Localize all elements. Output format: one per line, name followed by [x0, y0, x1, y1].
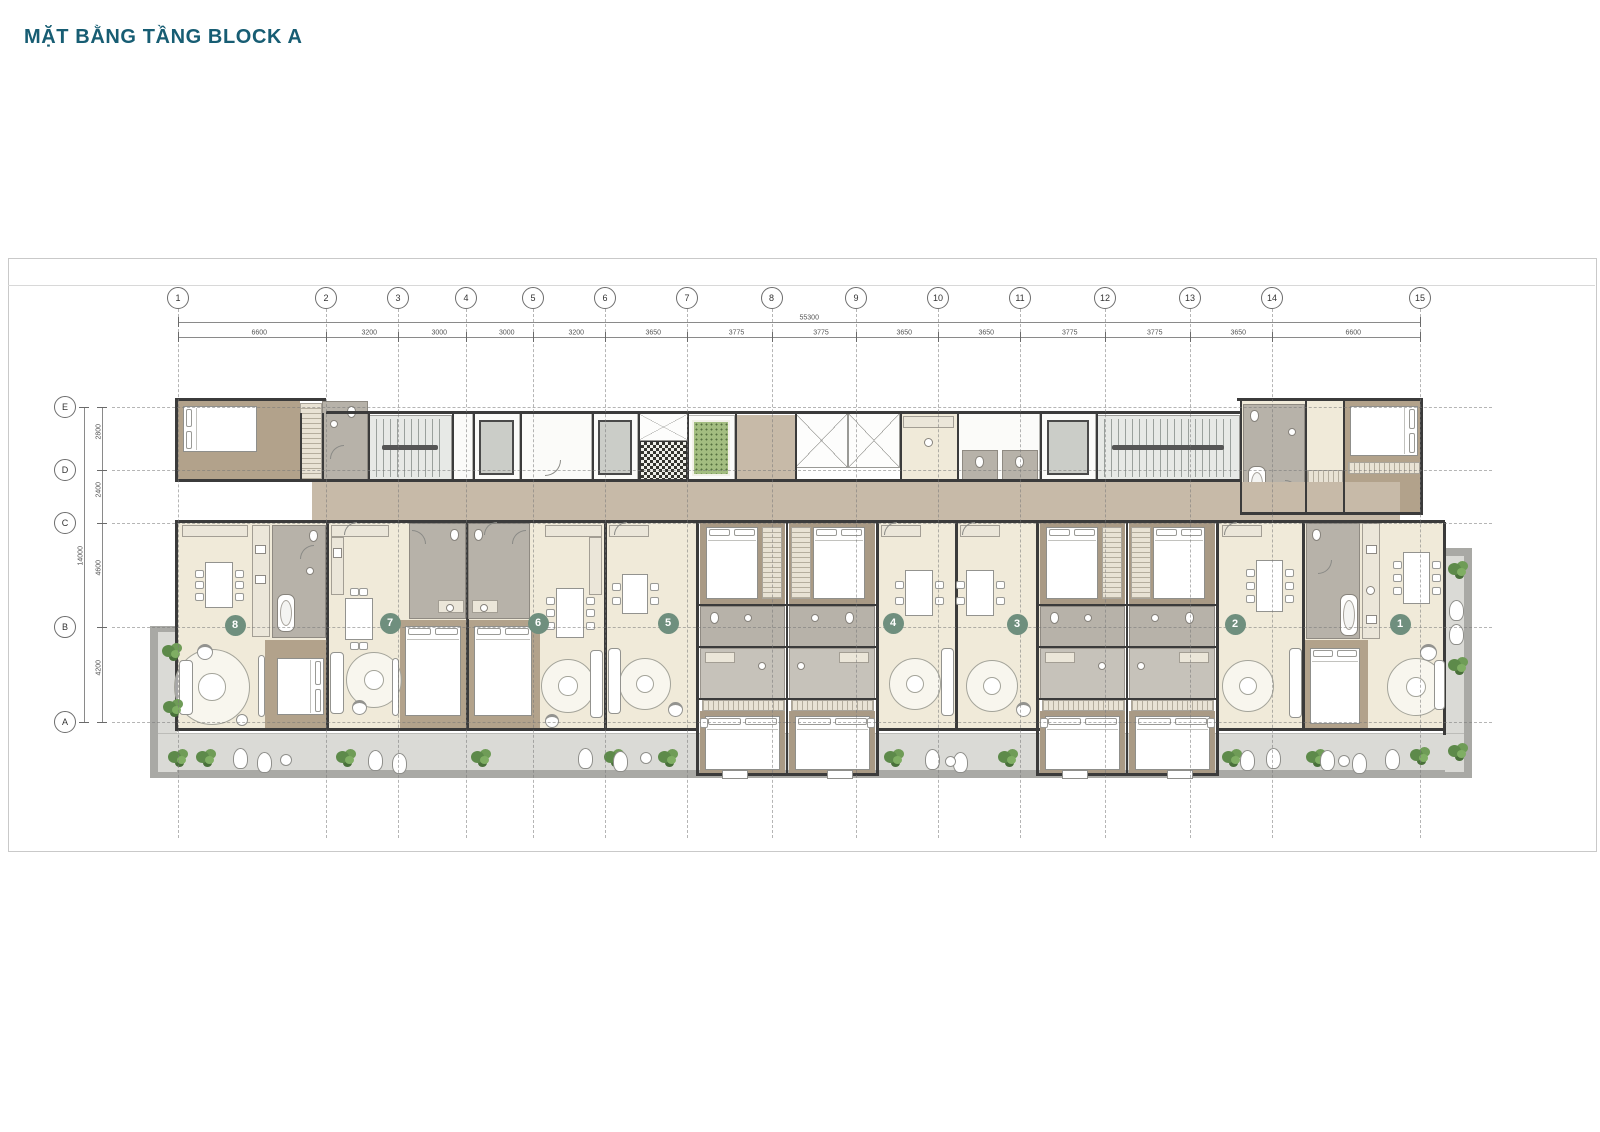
wall: [696, 522, 699, 776]
core-wall: [1040, 413, 1042, 482]
core-wall: [957, 413, 959, 482]
unit-number-badge: 1: [1390, 614, 1411, 635]
grid-column-bubble: 10: [927, 287, 949, 309]
dim-tick: [398, 332, 399, 342]
bed: [813, 527, 865, 599]
shaft-void: [795, 413, 848, 468]
plant: [1448, 656, 1470, 676]
toilet: [1250, 410, 1259, 422]
bed-line: [1048, 540, 1096, 541]
wardrobe: [702, 700, 785, 711]
dim-tick: [533, 332, 534, 342]
armchair: [1016, 702, 1031, 717]
dining-chair: [895, 581, 904, 589]
lounge-chair: [1266, 748, 1281, 769]
grid-line-column: [1020, 309, 1021, 838]
wall: [1216, 522, 1219, 776]
dimension-segment-vertical: 2800: [96, 438, 97, 439]
grid-column-bubble: 5: [522, 287, 544, 309]
grid-column-bubble: 1: [167, 287, 189, 309]
dimension-segment-vertical: 2400: [96, 496, 97, 497]
sink: [306, 567, 314, 575]
grid-line-row: [112, 627, 1492, 628]
wardrobe: [1042, 700, 1125, 711]
sink: [446, 604, 454, 612]
dim-tick: [1272, 332, 1273, 342]
bed-line: [707, 729, 778, 730]
core-wall: [452, 413, 454, 482]
wall: [698, 604, 877, 606]
sofa: [941, 648, 954, 716]
chair: [236, 714, 248, 726]
terrace-edge: [1445, 548, 1472, 556]
toilet: [450, 529, 459, 541]
oven: [255, 575, 266, 584]
vanity-counter: [1179, 652, 1209, 663]
shaft-void: [638, 413, 689, 441]
grid-column-bubble: 11: [1009, 287, 1031, 309]
dimension-segment-horizontal: 3000: [432, 330, 433, 331]
dining-chair: [586, 609, 595, 617]
wardrobe: [791, 700, 874, 711]
dining-chair: [935, 597, 944, 605]
dining-chair: [586, 597, 595, 605]
bed-pillow: [315, 689, 321, 713]
nightstand: [1207, 718, 1215, 728]
grid-line-column: [938, 309, 939, 838]
nightstand: [1040, 718, 1048, 728]
grid-line-column: [856, 309, 857, 838]
bed-line: [1155, 540, 1203, 541]
bed-line: [797, 729, 868, 730]
plant: [471, 748, 493, 768]
dining-chair: [612, 583, 621, 591]
dining-chair: [996, 581, 1005, 589]
unit-wall: [955, 522, 958, 730]
dim-tick: [97, 470, 107, 471]
dining-table: [966, 570, 994, 616]
nightstand: [867, 718, 875, 728]
core-wall: [1096, 413, 1098, 482]
bed-line: [1404, 408, 1405, 454]
armchair: [352, 700, 367, 715]
chaise: [1434, 660, 1445, 710]
wall: [1305, 401, 1307, 515]
unit-number-badge: 5: [658, 613, 679, 634]
dim-tick: [97, 722, 107, 723]
sink: [480, 604, 488, 612]
bed-line: [1312, 661, 1358, 662]
sink: [744, 614, 752, 622]
bed: [1046, 527, 1098, 599]
bed-pillow: [315, 661, 321, 685]
grid-column-bubble: 14: [1261, 287, 1283, 309]
bed-line: [310, 660, 311, 713]
wardrobe: [791, 527, 811, 599]
core-wall: [592, 413, 594, 482]
dimension-segment-horizontal: 3775: [813, 330, 814, 331]
grid-line-column: [772, 309, 773, 838]
page-title: MẶT BẰNG TẦNG BLOCK A: [24, 26, 303, 49]
core-wall: [520, 413, 522, 482]
dining-chair: [1285, 569, 1294, 577]
dining-chair: [235, 593, 244, 601]
dimension-segment-horizontal: 3000: [499, 330, 500, 331]
armchair: [545, 714, 559, 728]
lounge-chair: [1320, 750, 1335, 771]
dining-chair: [956, 581, 965, 589]
dim-tick: [1020, 332, 1021, 342]
grid-line-column: [466, 309, 467, 838]
bed-pillow: [435, 628, 458, 635]
bed-pillow: [816, 529, 837, 536]
plant: [336, 748, 358, 768]
grid-line-column: [1190, 309, 1191, 838]
dining-table: [905, 570, 933, 616]
papasan-chair: [1420, 644, 1437, 661]
grid-line-column: [326, 309, 327, 838]
sofa: [608, 648, 621, 714]
bed-pillow: [1313, 650, 1333, 657]
grid-line-column: [398, 309, 399, 838]
bed-pillow: [1337, 650, 1357, 657]
unit-wall: [1302, 522, 1305, 730]
vanity-counter: [839, 652, 869, 663]
wardrobe: [300, 403, 322, 480]
grid-line-column: [178, 309, 179, 838]
bed-line: [407, 639, 459, 640]
dining-chair: [546, 609, 555, 617]
toilet: [309, 530, 318, 542]
lounge-chair: [257, 752, 272, 773]
grid-line-column: [687, 309, 688, 838]
bed: [1350, 406, 1418, 456]
dim-tick: [856, 332, 857, 342]
grid-line-row: [112, 722, 1492, 723]
grid-column-bubble: 13: [1179, 287, 1201, 309]
vanity-counter: [1045, 652, 1075, 663]
plant: [658, 748, 680, 768]
bed-line: [1047, 729, 1118, 730]
dim-tick: [1420, 317, 1421, 327]
sink: [1084, 614, 1092, 622]
core-wall: [795, 413, 797, 482]
grid-line-column: [1420, 309, 1421, 838]
side-table: [364, 670, 384, 690]
dim-tick: [938, 332, 939, 342]
side-table: [198, 673, 225, 700]
grid-column-bubble: 12: [1094, 287, 1116, 309]
bed-pillow: [408, 628, 431, 635]
dining-chair: [1432, 561, 1441, 569]
dimension-segment-horizontal: 3775: [729, 330, 730, 331]
dining-chair: [935, 581, 944, 589]
core-wall: [638, 413, 640, 482]
dining-table: [1403, 552, 1430, 604]
stair-rail: [382, 445, 438, 450]
dining-chair: [359, 642, 368, 650]
core-wall: [735, 413, 737, 482]
exterior-wall: [175, 728, 698, 731]
dining-chair: [586, 622, 595, 630]
core-wall: [368, 413, 370, 482]
lounge-chair: [368, 750, 383, 771]
dining-chair: [650, 583, 659, 591]
sink: [797, 662, 805, 670]
lounge-chair: [613, 751, 628, 772]
frame-divider-line: [8, 285, 1595, 286]
core-wall: [322, 413, 324, 482]
exterior-wall: [175, 398, 326, 401]
wall: [1240, 401, 1242, 515]
unit-number-badge: 7: [380, 613, 401, 634]
grid-column-bubble: 7: [676, 287, 698, 309]
grid-column-bubble: 3: [387, 287, 409, 309]
kitchen-counter: [545, 525, 602, 537]
dining-chair: [1393, 587, 1402, 595]
grid-line-row: [112, 407, 1492, 408]
dining-table: [345, 598, 373, 640]
bed-line: [196, 408, 197, 450]
dining-chair: [1246, 595, 1255, 603]
lounge-chair: [392, 753, 407, 774]
bed-pillow: [505, 628, 529, 635]
bathtub-basin: [280, 600, 292, 626]
wardrobe: [1131, 527, 1151, 599]
armchair: [197, 644, 213, 660]
bed-pillow: [1049, 529, 1070, 536]
bed-line: [708, 540, 756, 541]
exterior-wall: [1217, 728, 1445, 731]
lounge-chair: [1240, 750, 1255, 771]
trash-room: [640, 441, 687, 480]
plant: [196, 748, 218, 768]
grid-line-column: [1105, 309, 1106, 838]
bed-pillow: [1409, 433, 1415, 453]
grid-row-bubble: A: [54, 711, 76, 733]
sink: [758, 662, 766, 670]
dim-tick: [97, 523, 107, 524]
elevator-car: [1047, 420, 1089, 475]
dim-tick: [326, 332, 327, 342]
dim-tick: [466, 332, 467, 342]
kitchen-counter: [331, 537, 344, 595]
dim-tick: [1420, 332, 1421, 342]
dining-chair: [1432, 574, 1441, 582]
bed-pillow: [1409, 409, 1415, 429]
oven: [1366, 615, 1377, 624]
dining-chair: [195, 581, 204, 589]
green-mat: [692, 420, 730, 476]
grid-column-bubble: 15: [1409, 287, 1431, 309]
dim-tick: [97, 627, 107, 628]
dimension-segment-horizontal: 3650: [646, 330, 647, 331]
dimension-segment-horizontal: 3200: [569, 330, 570, 331]
wall: [1343, 401, 1345, 515]
cooktop: [333, 548, 342, 558]
sink: [811, 614, 819, 622]
dining-chair: [1393, 561, 1402, 569]
grid-column-bubble: 9: [845, 287, 867, 309]
dining-chair: [956, 597, 965, 605]
dimension-segment-horizontal: 3650: [1231, 330, 1232, 331]
bed-pillow: [477, 628, 501, 635]
plant: [162, 642, 184, 662]
grid-row-bubble: B: [54, 616, 76, 638]
toilet: [474, 529, 483, 541]
dimension-total-horizontal: 55300: [800, 315, 801, 316]
wall: [1036, 522, 1039, 776]
dining-chair: [650, 597, 659, 605]
toilet: [845, 612, 854, 624]
dim-tick: [97, 407, 107, 408]
dining-chair: [235, 570, 244, 578]
plant: [884, 748, 906, 768]
lounge-chair: [233, 748, 248, 769]
dining-chair: [1285, 595, 1294, 603]
grid-line-row: [112, 523, 1492, 524]
side-table: [558, 676, 577, 695]
core-wall: [300, 413, 302, 482]
dining-chair: [359, 588, 368, 596]
bed-pillow: [1074, 529, 1095, 536]
wardrobe: [1348, 462, 1420, 474]
grid-line-column: [533, 309, 534, 838]
dining-table: [556, 588, 584, 638]
plant: [168, 748, 190, 768]
bed-pillow: [186, 431, 192, 449]
bed-pillow: [841, 529, 862, 536]
dimension-total-vertical: 14000: [78, 565, 79, 566]
unit-number-badge: 2: [1225, 614, 1246, 635]
unit-number-badge: 3: [1007, 614, 1028, 635]
side-stool: [280, 754, 292, 766]
sink: [1137, 662, 1145, 670]
dining-table: [1256, 560, 1283, 612]
sink: [1366, 586, 1375, 595]
unit-number-badge: 4: [883, 613, 904, 634]
dim-tick: [687, 332, 688, 342]
bed-pillow: [709, 529, 730, 536]
plant: [998, 748, 1020, 768]
toilet: [1050, 612, 1059, 624]
grid-line-column: [1272, 309, 1273, 838]
sink: [924, 438, 933, 447]
corridor-floor: [735, 415, 795, 482]
dining-table: [622, 574, 648, 614]
grid-line-column: [605, 309, 606, 838]
dining-chair: [546, 597, 555, 605]
cooktop: [1366, 545, 1377, 554]
wardrobe: [1131, 700, 1214, 711]
nightstand: [700, 718, 708, 728]
dining-chair: [235, 581, 244, 589]
dim-tick: [178, 332, 179, 342]
side-stool: [945, 756, 956, 767]
core-wall: [473, 413, 475, 482]
kitchen-counter: [331, 525, 389, 537]
dining-chair: [1432, 587, 1441, 595]
bed-pillow: [1156, 529, 1177, 536]
sofa: [590, 650, 603, 718]
bed-line: [476, 639, 530, 640]
dining-chair: [612, 597, 621, 605]
kitchen-counter: [182, 525, 248, 537]
grid-column-bubble: 4: [455, 287, 477, 309]
dimension-line-total: [178, 322, 1421, 323]
grid-row-bubble: C: [54, 512, 76, 534]
plant: [1410, 746, 1432, 766]
dim-tick: [772, 332, 773, 342]
sink: [1151, 614, 1159, 622]
sofa: [330, 652, 344, 714]
dimension-segment-horizontal: 6600: [252, 330, 253, 331]
bed: [1310, 648, 1360, 724]
grid-column-bubble: 2: [315, 287, 337, 309]
lounge-chair: [1352, 753, 1367, 774]
dimension-segment-horizontal: 3650: [979, 330, 980, 331]
bed: [183, 406, 257, 452]
bed: [1153, 527, 1205, 599]
lounge-chair: [1449, 600, 1464, 621]
exterior-wall: [326, 411, 1240, 414]
elevator-car: [598, 420, 632, 475]
dimension-segment-horizontal: 6600: [1346, 330, 1347, 331]
sink: [1288, 428, 1296, 436]
grid-row-bubble: E: [54, 396, 76, 418]
dining-table: [205, 562, 233, 608]
grid-row-bubble: D: [54, 459, 76, 481]
dining-chair: [1393, 574, 1402, 582]
dim-tick: [79, 407, 89, 408]
elevator-car: [479, 420, 514, 475]
dining-chair: [195, 570, 204, 578]
dimension-segment-horizontal: 3775: [1062, 330, 1063, 331]
toilet: [975, 456, 984, 468]
bed: [706, 527, 758, 599]
wall: [1240, 512, 1423, 515]
toilet: [710, 612, 719, 624]
dim-tick: [1190, 332, 1191, 342]
dim-tick: [1105, 332, 1106, 342]
bed-pillow: [186, 409, 192, 427]
armchair: [668, 702, 683, 717]
dining-chair: [895, 597, 904, 605]
floor-plan-page: MẶT BẰNG TẦNG BLOCK A 553006600320030003…: [0, 0, 1600, 1132]
dimension-line-segments: [178, 337, 1421, 338]
plant: [1448, 560, 1470, 580]
vanity-counter: [705, 652, 735, 663]
unit-number-badge: 8: [225, 615, 246, 636]
bed-line: [1137, 729, 1208, 730]
lounge-chair: [578, 748, 593, 769]
plant: [163, 698, 185, 718]
dining-chair: [195, 593, 204, 601]
bathtub-basin: [1343, 600, 1355, 630]
corridor-floor: [312, 482, 1250, 522]
dining-chair: [996, 597, 1005, 605]
side-stool: [640, 752, 652, 764]
dining-chair: [350, 588, 359, 596]
wall: [876, 522, 879, 776]
core-wall: [900, 413, 902, 482]
dim-tick: [178, 317, 179, 327]
grid-column-bubble: 6: [594, 287, 616, 309]
dimension-segment-horizontal: 3650: [897, 330, 898, 331]
plant: [1448, 742, 1470, 762]
sink: [330, 420, 338, 428]
sofa: [1289, 648, 1302, 718]
